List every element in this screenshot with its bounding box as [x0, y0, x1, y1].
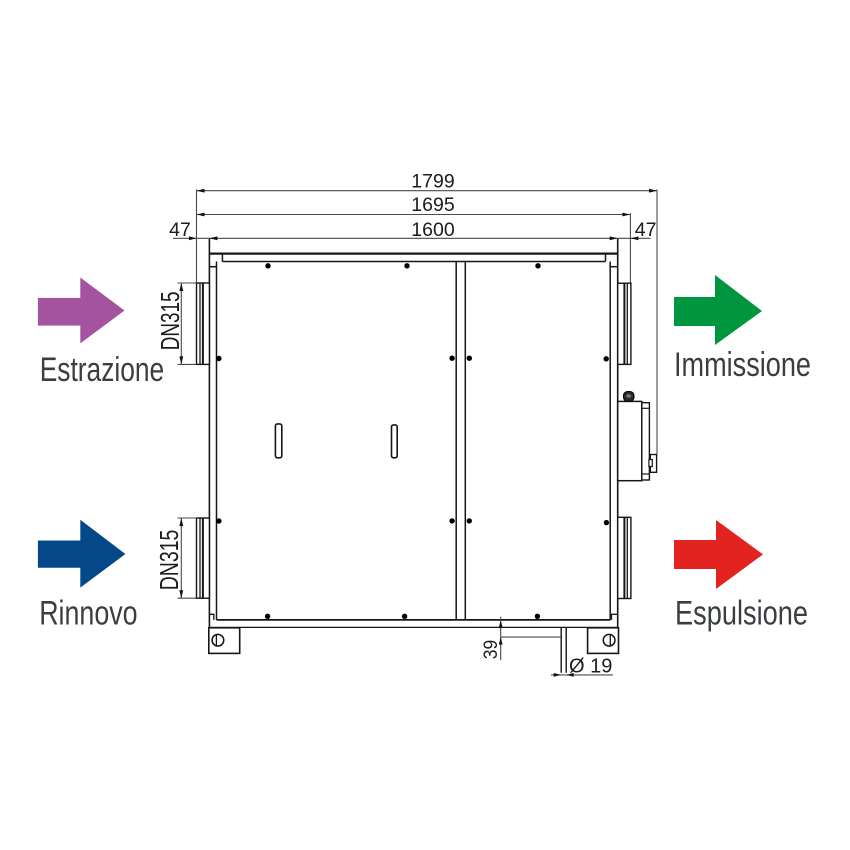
svg-text:1695: 1695 [411, 194, 455, 216]
svg-text:1600: 1600 [411, 219, 455, 241]
svg-text:DN315: DN315 [156, 530, 184, 591]
svg-text:Immissione: Immissione [674, 346, 811, 384]
svg-text:Espulsione: Espulsione [675, 595, 808, 633]
svg-text:47: 47 [169, 219, 191, 241]
svg-text:Ø 19: Ø 19 [569, 655, 612, 677]
svg-text:47: 47 [635, 219, 657, 241]
svg-text:1799: 1799 [411, 170, 454, 192]
svg-text:Rinnovo: Rinnovo [39, 594, 137, 632]
svg-text:39: 39 [480, 640, 502, 660]
svg-text:Estrazione: Estrazione [40, 351, 165, 389]
svg-text:DN315: DN315 [157, 292, 185, 351]
